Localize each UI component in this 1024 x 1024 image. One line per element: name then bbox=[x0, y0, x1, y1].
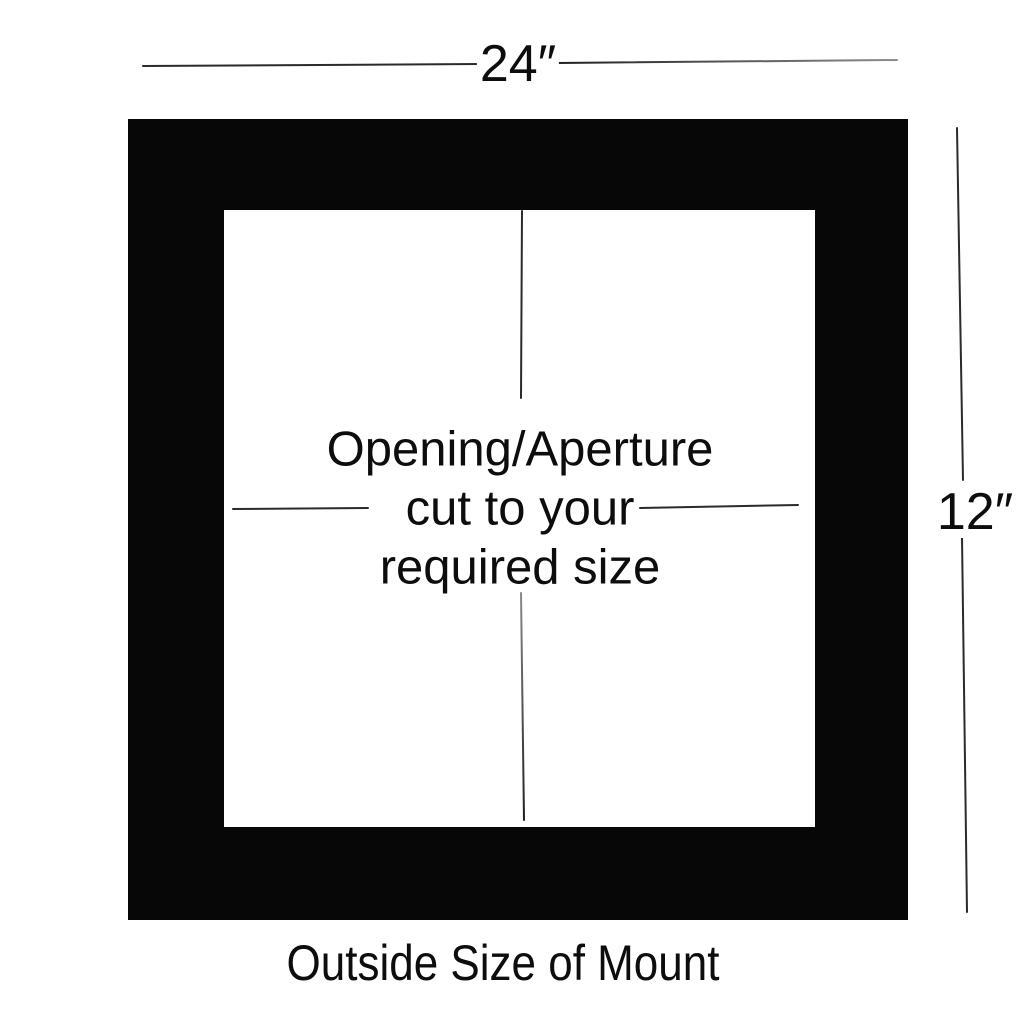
width-dimension-label: 24″ bbox=[477, 38, 559, 90]
aperture-caption-line-2: cut to your bbox=[327, 480, 714, 539]
aperture-caption-line-1: Opening/Aperture bbox=[327, 421, 714, 480]
aperture-caption-line-3: required size bbox=[327, 539, 714, 598]
aperture-caption: Opening/Aperture cut to your required si… bbox=[327, 421, 714, 598]
right-dimension-line-upper bbox=[957, 128, 963, 480]
top-dimension-line-left bbox=[143, 64, 480, 66]
mount-size-diagram: 24″ 12″ Opening/Aperture cut to your req… bbox=[0, 0, 1024, 1024]
top-dimension-line-right bbox=[557, 60, 897, 63]
height-dimension-label: 12″ bbox=[934, 486, 1016, 538]
right-dimension-line-lower bbox=[962, 537, 967, 912]
outside-size-caption: Outside Size of Mount bbox=[287, 938, 720, 988]
